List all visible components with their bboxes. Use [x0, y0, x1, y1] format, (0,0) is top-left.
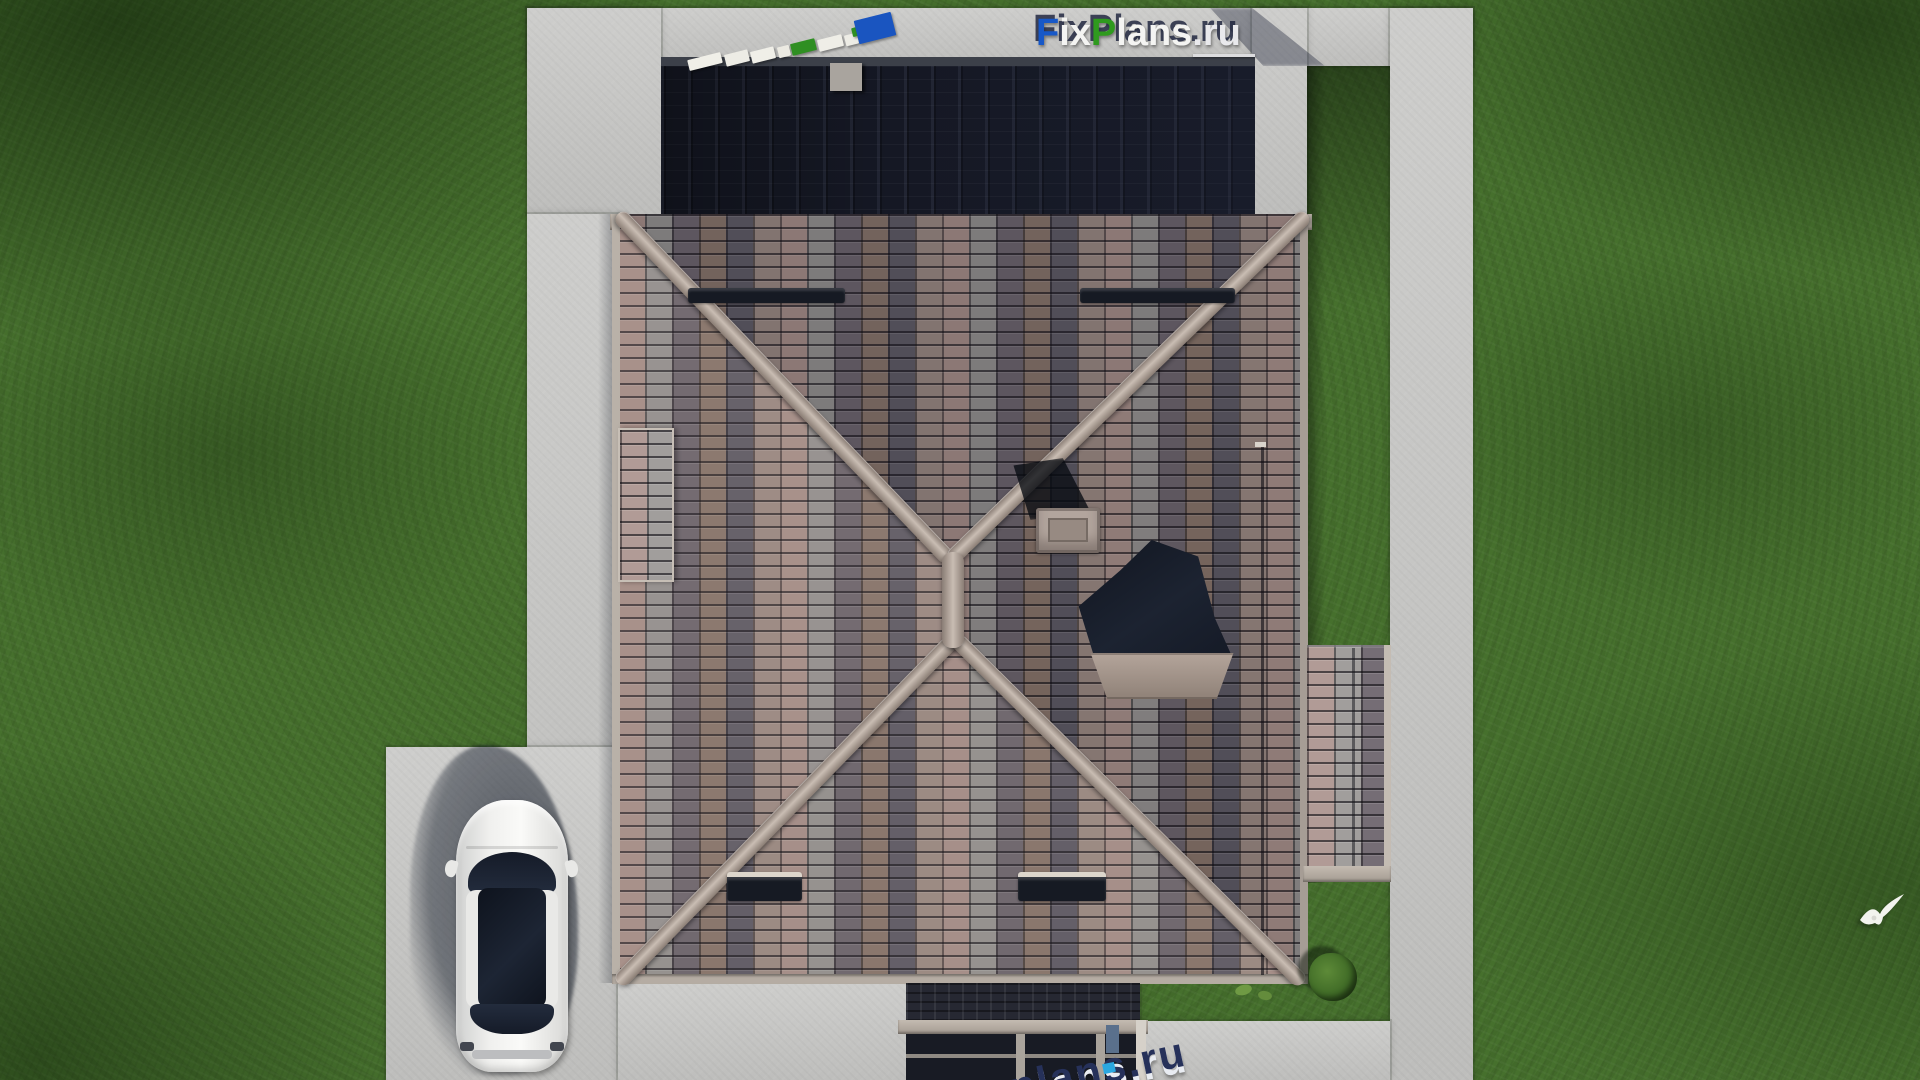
side-dormer-roof [618, 428, 674, 582]
logo-seg-ru: .ru [1192, 12, 1241, 54]
car-rear-window [470, 1004, 554, 1034]
back-roof [661, 66, 1255, 214]
chimney-cap-inner [1048, 518, 1088, 542]
roof-window-south-1 [727, 872, 802, 901]
concrete-right-walkway [1390, 8, 1473, 1080]
porch-roof [906, 983, 1140, 1022]
car-taillight-left [460, 1042, 474, 1051]
car-hood-seam [466, 846, 558, 849]
aerial-render: FixPlans.ru plans.ru [0, 0, 1920, 1080]
extension-roof-line [1352, 648, 1355, 870]
roof-window-north-2 [1080, 288, 1235, 303]
back-roof-notch [830, 63, 862, 91]
extension-roof-right [1307, 645, 1390, 882]
fixplans-logo: FixPlans.ru [1036, 12, 1241, 55]
roof-window-north-1 [688, 288, 845, 303]
bush [1309, 953, 1357, 1001]
back-roof-parapet [661, 57, 1255, 66]
car-body [456, 800, 568, 1072]
logo-seg-p: P [1091, 12, 1116, 54]
concrete-top-left-pad [527, 8, 661, 214]
car-rear-bar [472, 1050, 552, 1059]
extension-roof-eave [1303, 866, 1391, 882]
grass-strip-shade [1307, 66, 1390, 306]
extension-roof-trim [1384, 645, 1391, 882]
bird-icon [1856, 890, 1908, 942]
car-roof-glass [478, 888, 546, 1008]
car-taillight-right [550, 1042, 564, 1051]
logo-seg-f: F [1036, 12, 1059, 54]
roof-gutter-line [1261, 445, 1264, 975]
logo-underline [1193, 54, 1255, 57]
logo-seg-ix: ix [1059, 12, 1091, 54]
ridge-center [942, 552, 964, 648]
roof-window-south-2 [1018, 872, 1106, 901]
roof-gutter-tick [1255, 442, 1266, 447]
roof-eave-left [612, 214, 620, 983]
logo-seg-lans: lans [1116, 12, 1192, 54]
skylight-frame [1086, 653, 1238, 699]
chimney-cap [1036, 508, 1100, 553]
